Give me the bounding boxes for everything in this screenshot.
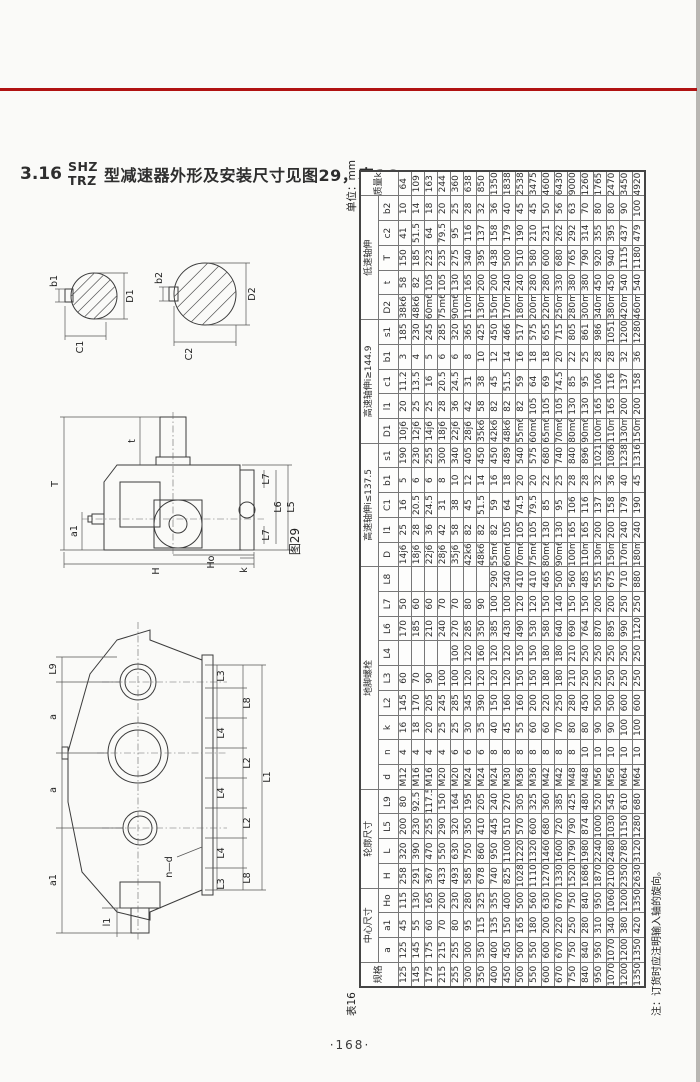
table-16: 规格中心尺寸轮廓尺寸地脚螺栓高速轴伸i≤137.5高速轴伸i≥144.9低速轴伸… [359, 170, 646, 988]
header-red-rule [0, 88, 697, 91]
figure-caption: 图29 [286, 528, 303, 555]
dim-label-H: H [151, 567, 162, 574]
dim-label-k: k [239, 567, 250, 573]
table-16-body: 1251254511525832020080M12416145601705014… [398, 171, 645, 987]
section-number: 3.16 [20, 164, 62, 184]
dim-label-L9: L9 [48, 663, 59, 674]
dim-label-L3-top: L3 [216, 670, 227, 681]
dim-label-a-lower: a [48, 787, 59, 793]
table-unit: 单位：mm [344, 160, 359, 212]
shaft-section-large-figure: b2 C2 D2 [158, 242, 258, 364]
table-caption: 表16 [344, 992, 359, 1016]
dim-label-L4-mid: L4 [216, 787, 227, 798]
reducer-side-view-figure: T t a1 H Ho k L7 L7 L6 L5 [42, 412, 297, 574]
table-16-region: 表16 单位：mm 规格中心尺寸轮廓尺寸地脚螺栓高速轴伸i≤137.5高速轴伸i… [344, 156, 664, 1018]
table-16-header: 规格中心尺寸轮廓尺寸地脚螺栓高速轴伸i≤137.5高速轴伸i≥144.9低速轴伸… [360, 171, 398, 987]
dim-label-L7-top: L7 [261, 473, 272, 484]
page-number: ·168· [0, 1038, 700, 1052]
dim-label-a-upper: a [48, 714, 59, 720]
dim-label-L1: L1 [262, 771, 273, 782]
dim-label-L4-top: L4 [216, 727, 227, 738]
dim-label-t: t [127, 439, 138, 443]
dim-label-C1: C1 [75, 341, 86, 354]
model-codes: SHZ TRZ [68, 160, 98, 188]
scanned-page: { "colors": { "rule_red": "#b01212" }, "… [0, 0, 700, 1082]
dim-label-Ho: Ho [206, 555, 217, 568]
scan-edge-shadow [696, 0, 700, 1082]
dim-label-L3-bot: L3 [216, 878, 227, 889]
dim-label-L8-top: L8 [242, 697, 253, 708]
table-16-rotated-content: 表16 单位：mm 规格中心尺寸轮廓尺寸地脚螺栓高速轴伸i≤137.5高速轴伸i… [344, 156, 664, 1018]
dim-label-D2: D2 [247, 287, 258, 300]
dim-label-n-d: n—d [164, 856, 175, 878]
dim-label-L4-bot: L4 [216, 847, 227, 858]
dim-label-a1: a1 [69, 525, 80, 537]
dim-label-L8-bot: L8 [242, 872, 253, 883]
reducer-top-view-figure: L9 a a a1 l1 n—d L3 L8 L4 L2 L4 L2 L4 L8… [42, 622, 297, 997]
model-trz: TRZ [68, 174, 98, 188]
dim-label-b1: b1 [49, 275, 60, 287]
shaft-section-small-figure: b1 C1 D1 [52, 248, 137, 356]
dim-label-C2: C2 [184, 348, 195, 361]
dim-label-D1: D1 [125, 289, 136, 302]
dim-label-l1: l1 [102, 918, 113, 927]
dim-label-L7-bottom: L7 [261, 529, 272, 540]
table-note: 注：订货时应注明输入轴的旋向。 [648, 156, 663, 1018]
model-shz: SHZ [68, 160, 98, 174]
dim-label-L2-upper: L2 [242, 757, 253, 768]
dim-label-L6: L6 [273, 501, 284, 512]
dim-label-L2-lower: L2 [242, 817, 253, 828]
dim-label-L5: L5 [286, 501, 297, 512]
dim-label-a1: a1 [48, 874, 59, 886]
dim-label-b2: b2 [154, 272, 165, 284]
dim-label-T: T [50, 481, 61, 488]
